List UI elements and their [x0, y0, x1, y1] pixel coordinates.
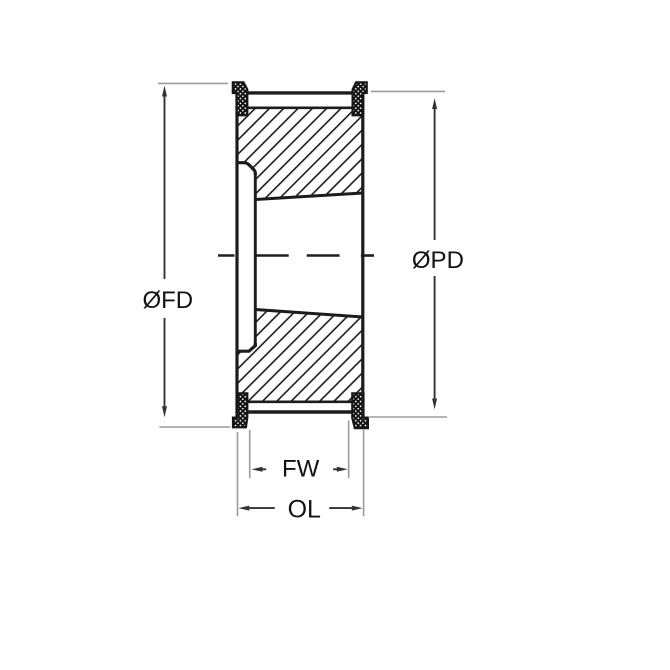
svg-text:ØPD: ØPD — [412, 247, 464, 274]
svg-text:FW: FW — [282, 456, 320, 483]
svg-text:ØFD: ØFD — [142, 287, 193, 314]
svg-text:OL: OL — [288, 496, 321, 524]
